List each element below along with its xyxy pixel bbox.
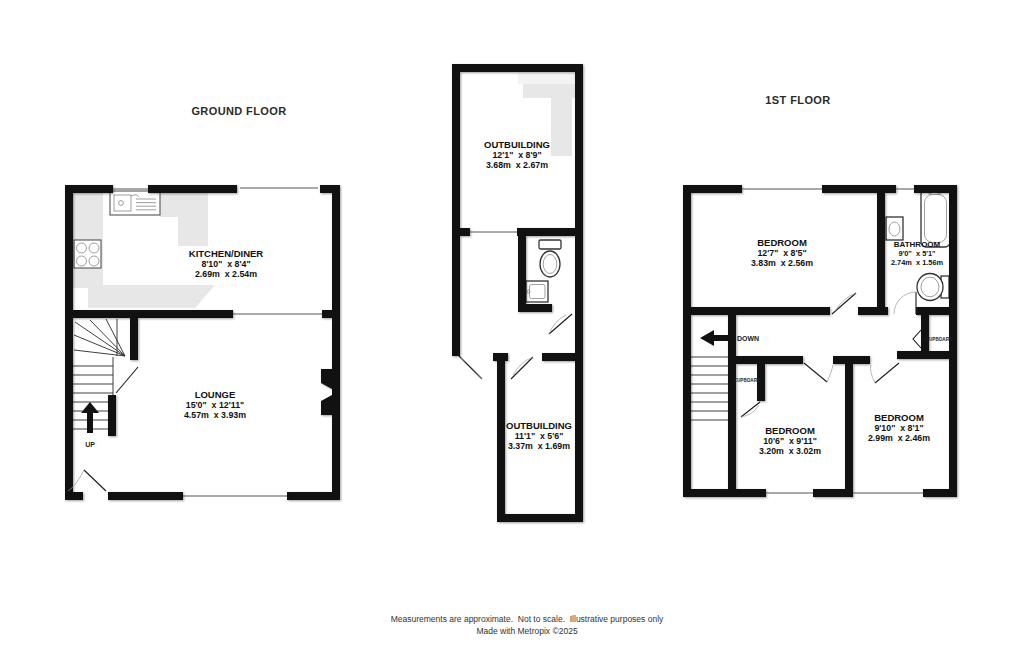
outbuilding-lower-imperial: 11'1" x 5'6" [515, 431, 564, 441]
lounge-imperial: 15'0" x 12'11" [186, 400, 245, 410]
bedroom-three-imperial: 9'10" x 8'1" [874, 423, 923, 433]
sink-icon [110, 191, 160, 215]
bathroom-imperial: 9'0" x 5'1" [898, 249, 936, 258]
bathroom-basin-icon [886, 217, 903, 240]
outbuildings-plan: OUTBUILDING 12'1" x 8'9" 3.68m x 2.67m O… [452, 64, 583, 522]
ground-floor-windows [113, 188, 322, 496]
floorplan-canvas: GROUND FLOOR [0, 0, 1024, 666]
outbuilding-lower-metric: 3.37m x 1.69m [508, 441, 570, 451]
up-arrow-icon [81, 402, 99, 433]
toilet-icon [539, 240, 561, 277]
kitchen-counter-top [160, 191, 208, 217]
kitchen-counter-bottom [88, 285, 215, 308]
bedroom-two-imperial: 10'6" x 9'11" [763, 436, 817, 446]
wc-basin-icon [526, 281, 548, 302]
bedroom-three-metric: 2.99m x 2.46m [868, 433, 930, 443]
outbuilding-counter [523, 84, 575, 98]
down-label: DOWN [737, 335, 759, 342]
bedroom-one-imperial: 12'7" x 8'5" [757, 248, 806, 258]
outbuilding-upper-imperial: 12'1" x 8'9" [492, 150, 541, 160]
outbuilding-upper-name: OUTBUILDING [484, 139, 550, 150]
outbuildings-doors [459, 314, 572, 379]
bathroom-metric: 2.74m x 1.56m [891, 258, 944, 267]
bedroom-one-metric: 3.83m x 2.56m [751, 258, 813, 268]
bedroom-one-name: BEDROOM [757, 237, 807, 248]
kitchen-diner-name: KITCHEN/DINER [189, 248, 264, 259]
kitchen-diner-imperial: 8'10" x 8'4" [201, 259, 250, 269]
kitchen-diner-metric: 2.69m x 2.54m [195, 269, 257, 279]
up-label: UP [85, 441, 95, 448]
chimney-breast [321, 369, 332, 389]
outbuilding-upper-metric: 3.68m x 2.67m [486, 160, 548, 170]
kitchen-counter-corner [178, 217, 208, 246]
first-floor-title: 1ST FLOOR [765, 94, 830, 106]
hob-icon [74, 240, 101, 268]
bedroom-two-metric: 3.20m x 3.02m [759, 446, 821, 456]
outbuilding-counter-side [551, 98, 572, 156]
bathroom-toilet-icon [917, 274, 949, 301]
cupboard-bifold-door [913, 330, 921, 348]
outbuilding-counter-top [518, 73, 575, 84]
credit-line: Made with Metropix ©2025 [476, 626, 578, 636]
outbuilding-lower-name: OUTBUILDING [506, 420, 572, 431]
disclaimer-line: Measurements are approximate. Not to sca… [391, 614, 664, 624]
bathroom-name: BATHROOM [894, 240, 941, 249]
bedroom-two-name: BEDROOM [765, 425, 815, 436]
ground-floor-stairs: UP [73, 319, 125, 448]
outbuilding-fixtures [518, 73, 575, 302]
lounge-metric: 4.57m x 3.93m [184, 410, 246, 420]
ground-floor-title: GROUND FLOOR [191, 105, 286, 117]
bedroom-three-name: BEDROOM [874, 412, 924, 423]
first-floor-stairs: DOWN [691, 330, 759, 420]
bath-icon [921, 189, 950, 247]
first-floor-plan: 1ST FLOOR [683, 94, 957, 497]
ground-floor-plan: GROUND FLOOR [65, 105, 340, 500]
cupboard-right-label: CUPBOARD [926, 337, 953, 342]
cupboard-left-label: CUPBOARD [734, 378, 761, 383]
lounge-name: LOUNGE [195, 389, 236, 400]
